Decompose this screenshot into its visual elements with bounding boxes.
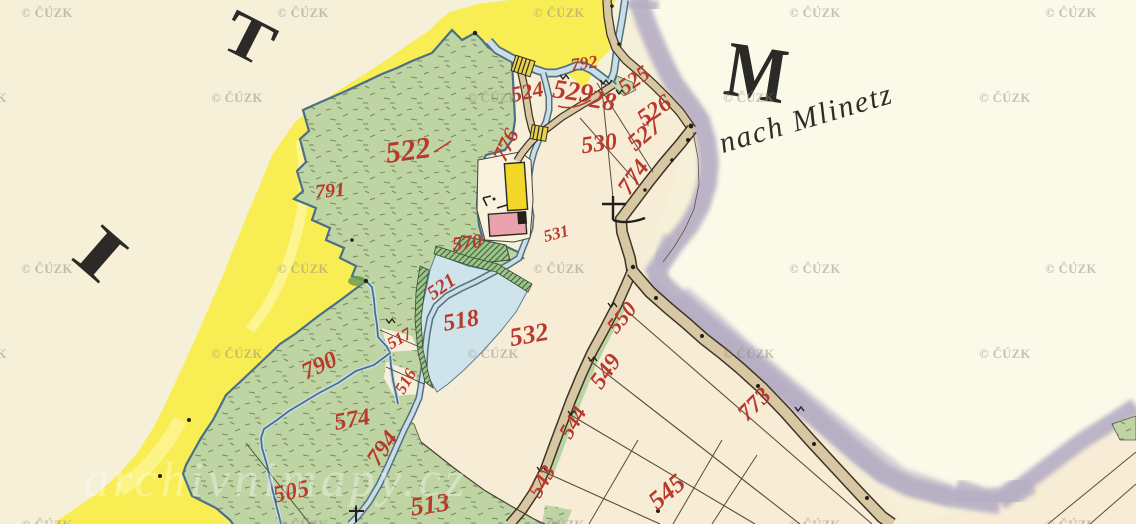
svg-text:© ČÚZK: © ČÚZK (21, 6, 73, 20)
svg-text:© ČÚZK: © ČÚZK (211, 347, 263, 361)
svg-text:© ČÚZK: © ČÚZK (277, 6, 329, 20)
svg-text:© ČÚZK: © ČÚZK (723, 91, 775, 105)
svg-text:© ČÚZK: © ČÚZK (789, 262, 841, 276)
svg-text:© ČÚZK: © ČÚZK (21, 518, 73, 524)
svg-text:© ČÚZK: © ČÚZK (979, 91, 1031, 105)
svg-text:© ČÚZK: © ČÚZK (533, 518, 585, 524)
svg-text:© ČÚZK: © ČÚZK (533, 262, 585, 276)
svg-text:28: 28 (587, 84, 619, 117)
svg-text:530: 530 (580, 129, 619, 160)
svg-text:© ČÚZK: © ČÚZK (1045, 518, 1097, 524)
svg-text:© ČÚZK: © ČÚZK (1045, 6, 1097, 20)
svg-text:792: 792 (569, 51, 599, 75)
svg-text:© ČÚZK: © ČÚZK (723, 347, 775, 361)
svg-text:© ČÚZK: © ČÚZK (467, 347, 519, 361)
svg-text:archivnimapy.cz: archivnimapy.cz (84, 451, 468, 507)
svg-text:© ČÚZK: © ČÚZK (277, 262, 329, 276)
svg-text:© ČÚZK: © ČÚZK (0, 91, 7, 105)
svg-text:© ČÚZK: © ČÚZK (789, 518, 841, 524)
svg-text:522: 522 (383, 131, 432, 170)
svg-text:© ČÚZK: © ČÚZK (979, 347, 1031, 361)
svg-text:© ČÚZK: © ČÚZK (1045, 262, 1097, 276)
svg-text:© ČÚZK: © ČÚZK (0, 347, 7, 361)
svg-text:791: 791 (314, 179, 346, 204)
svg-text:570: 570 (451, 230, 484, 256)
svg-text:© ČÚZK: © ČÚZK (21, 262, 73, 276)
svg-text:© ČÚZK: © ČÚZK (211, 91, 263, 105)
svg-text:© ČÚZK: © ČÚZK (533, 6, 585, 20)
svg-text:© ČÚZK: © ČÚZK (789, 6, 841, 20)
svg-text:© ČÚZK: © ČÚZK (277, 518, 329, 524)
svg-text:© ČÚZK: © ČÚZK (467, 91, 519, 105)
